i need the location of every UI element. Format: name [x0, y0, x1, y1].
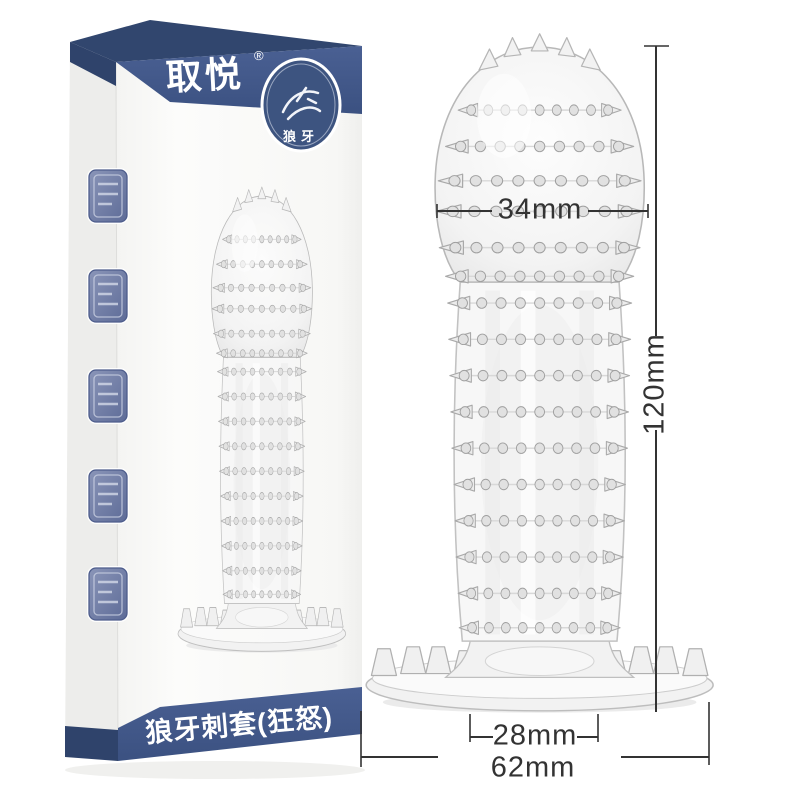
seal-badge-1 — [87, 168, 129, 224]
brand-logo-text: 取悦 — [165, 53, 245, 98]
product-box: 取悦 ® 狼牙 — [65, 20, 365, 779]
seal-badge-2 — [87, 268, 129, 324]
inner-width-label: 28mm — [493, 720, 578, 752]
seal-badge-5 — [87, 566, 129, 622]
wolf-emblem: 狼牙 — [262, 59, 340, 151]
registered-mark-label: ® — [254, 48, 264, 63]
emblem-label: 狼牙 — [282, 129, 319, 144]
seal-badge-3 — [87, 368, 129, 424]
length-label: 120mm — [639, 333, 671, 435]
box-side-bottom-band — [65, 726, 118, 761]
box-shadow — [65, 761, 365, 779]
product-photo-stage: 取悦 ® 狼牙 — [0, 0, 800, 800]
dim-inner-width: 28mm — [470, 714, 598, 752]
dim-length: 120mm — [639, 46, 671, 712]
base-width-label: 62mm — [491, 752, 576, 784]
head-width-label: 34mm — [498, 194, 583, 226]
seal-badge-4 — [87, 468, 129, 524]
scene-svg: 取悦 ® 狼牙 — [0, 0, 800, 800]
